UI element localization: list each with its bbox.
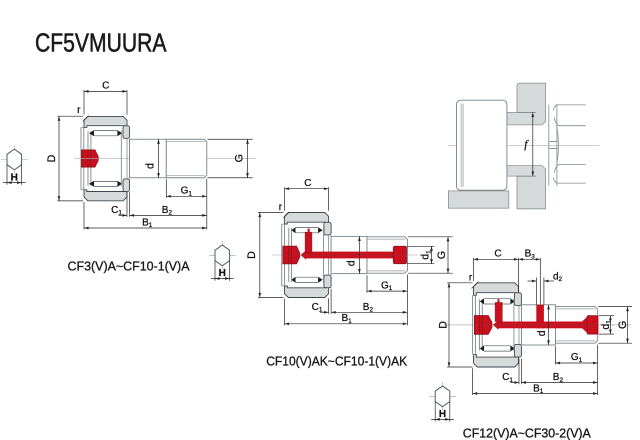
svg-text:G: G (617, 321, 629, 329)
svg-text:D: D (437, 321, 449, 329)
svg-text:H: H (11, 172, 18, 183)
svg-text:d: d (144, 163, 156, 169)
svg-text:D: D (246, 251, 258, 259)
svg-text:C: C (304, 178, 311, 189)
svg-text:C: C (102, 81, 109, 92)
svg-text:d: d (536, 330, 548, 336)
svg-text:D: D (46, 154, 58, 162)
svg-text:CF3(V)A~CF10-1(V)A: CF3(V)A~CF10-1(V)A (68, 258, 190, 273)
svg-text:H: H (219, 268, 226, 279)
svg-text:CF12(V)A~CF30-2(V)A: CF12(V)A~CF30-2(V)A (463, 426, 591, 440)
svg-text:CF5VMUURA: CF5VMUURA (35, 27, 167, 57)
svg-text:H: H (439, 409, 446, 420)
svg-text:C: C (494, 249, 501, 260)
svg-text:G: G (233, 154, 245, 162)
svg-text:d: d (345, 260, 357, 266)
svg-text:G: G (436, 251, 448, 259)
svg-text:CF10(V)AK~CF10-1(V)AK: CF10(V)AK~CF10-1(V)AK (266, 354, 407, 369)
